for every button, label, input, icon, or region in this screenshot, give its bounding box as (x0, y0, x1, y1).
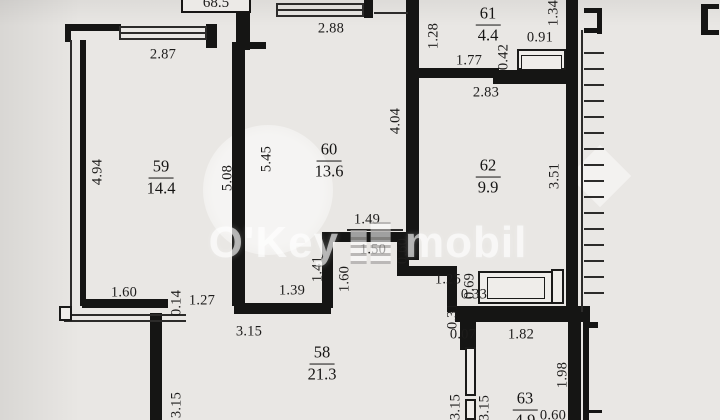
hatch-tick (584, 116, 604, 118)
room-number: 63 (513, 390, 538, 411)
fixture (465, 347, 476, 396)
thin-line (70, 40, 72, 306)
dimension-label-vertical: 1.34 (546, 0, 563, 26)
room-label-60: 6013.6 (315, 141, 344, 182)
dimension-label-vertical: 1.98 (555, 362, 572, 388)
wall-segment (80, 40, 86, 306)
room-label-63: 634.9 (513, 390, 538, 420)
fixture (59, 306, 72, 321)
thin-line (278, 15, 364, 17)
wall-segment (701, 30, 719, 35)
wall-segment (455, 306, 590, 322)
dimension-label-vertical: 1.41 (310, 256, 327, 282)
dimension-label-vertical: 0.14 (169, 290, 186, 316)
dimension-label-vertical: 0.31 (445, 303, 462, 329)
hatch-tick (584, 244, 604, 246)
thin-line (581, 30, 583, 312)
thin-line (347, 229, 403, 231)
thin-line (121, 32, 207, 34)
fixture-inner (521, 55, 562, 70)
wall-segment (419, 68, 499, 78)
room-area: 4.9 (513, 412, 538, 420)
thin-line (276, 3, 278, 17)
wall-segment (206, 24, 217, 48)
dimension-label-vertical: 4.94 (90, 159, 107, 185)
hatch-tick (584, 148, 604, 150)
room-label-61: 614.4 (476, 5, 501, 46)
dimension-label: 1.39 (279, 283, 305, 300)
room-label-59: 5914.4 (147, 158, 176, 199)
wall-segment (65, 24, 121, 31)
room-area: 21.3 (308, 366, 337, 385)
dimension-label-vertical: 5.08 (220, 165, 237, 191)
dimension-label: 1.60 (111, 285, 137, 302)
hatch-tick (584, 84, 604, 86)
hatch-tick (584, 52, 604, 54)
fixture (551, 269, 564, 304)
dimension-label-vertical: 0.69 (462, 273, 479, 299)
thin-line (119, 26, 121, 40)
dimension-label-vertical: 3.15 (448, 394, 465, 420)
dimension-label-vertical: 3.15 (477, 395, 494, 420)
wall-segment (406, 0, 419, 260)
hatch-tick (584, 164, 604, 166)
thin-line (205, 26, 207, 40)
dimension-label-vertical: 1.60 (337, 266, 354, 292)
dimension-label: 2.88 (318, 21, 344, 38)
hatch-tick (584, 260, 604, 262)
hatch-tick (584, 292, 604, 294)
dimension-label-vertical: 0.42 (496, 44, 513, 70)
dimension-label: 1.82 (508, 327, 534, 344)
thin-line (121, 26, 207, 28)
dimension-label: 1.77 (456, 53, 482, 70)
dimension-label-vertical: 1.28 (426, 23, 443, 49)
hatch-tick (584, 212, 604, 214)
dimension-label-vertical: 3.15 (169, 392, 186, 418)
room-number: 59 (149, 158, 174, 179)
dimension-label: 1.49 (354, 212, 380, 229)
dimension-label: 2.87 (150, 47, 176, 64)
wall-segment (241, 303, 331, 314)
fixture-inner (487, 277, 545, 299)
dimension-label-vertical: 3.51 (547, 163, 564, 189)
room-area: 14.4 (147, 180, 176, 199)
total-area-box: 68.5 (181, 0, 251, 13)
dimension-label: 1.27 (189, 293, 215, 310)
room-area: 13.6 (315, 163, 344, 182)
hatch-tick (584, 132, 604, 134)
dimension-label: 1.25 (435, 272, 461, 289)
dimension-label-vertical: 5.45 (259, 146, 276, 172)
total-area-value: 68.5 (183, 0, 249, 12)
hatch-tick (584, 100, 604, 102)
room-number: 58 (310, 344, 335, 365)
wall-segment (589, 410, 602, 413)
thin-line (374, 12, 408, 14)
paper-shading-left (0, 0, 80, 420)
wall-segment (583, 322, 589, 420)
dimension-label: 1.50 (360, 242, 386, 259)
thin-line (278, 3, 364, 5)
dimension-label: 0.60 (540, 408, 566, 420)
room-area: 4.4 (476, 27, 501, 46)
room-area: 9.9 (476, 179, 501, 198)
wall-segment (584, 28, 602, 33)
wall-segment (566, 0, 578, 310)
hatch-tick (584, 180, 604, 182)
hatch-tick (584, 68, 604, 70)
watermark-brand-right: mobil (405, 218, 527, 268)
wall-segment (364, 0, 373, 18)
room-number: 60 (317, 141, 342, 162)
dimension-label: 3.15 (236, 324, 262, 341)
thin-line (278, 9, 364, 11)
dimension-label: 2.83 (473, 85, 499, 102)
thin-line (121, 38, 207, 40)
room-label-58: 5821.3 (308, 344, 337, 385)
dimension-label-vertical: 0.60 (395, 238, 412, 264)
wall-segment (236, 42, 266, 49)
fixture (465, 399, 476, 420)
room-number: 61 (476, 5, 501, 26)
floor-plan-photo: 2.872.880.911.772.831.491.501.250.331.60… (0, 0, 720, 420)
hatch-tick (584, 196, 604, 198)
thin-line (362, 3, 364, 17)
room-number: 62 (476, 157, 501, 178)
wall-segment (701, 4, 719, 9)
hatch-tick (584, 228, 604, 230)
room-label-62: 629.9 (476, 157, 501, 198)
wall-segment (493, 70, 575, 84)
wall-segment (150, 313, 162, 420)
thin-line (64, 320, 186, 322)
dimension-label: 0.91 (527, 30, 553, 47)
dimension-label-vertical: 4.04 (388, 108, 405, 134)
hatch-tick (584, 276, 604, 278)
